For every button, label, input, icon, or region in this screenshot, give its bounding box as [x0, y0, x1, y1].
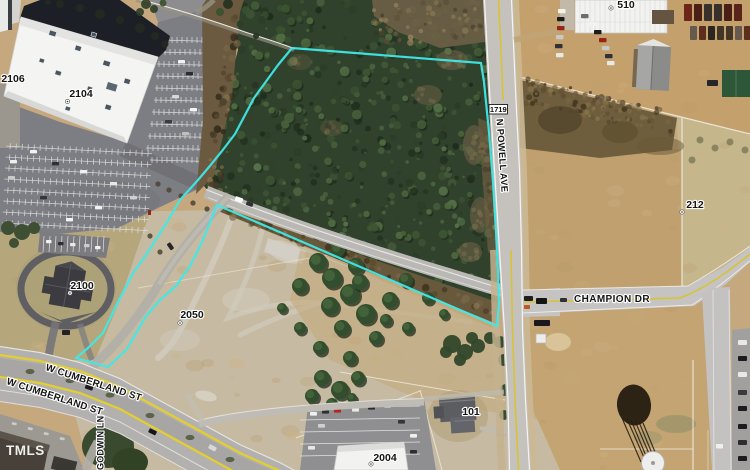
svg-text:2050: 2050 — [180, 309, 204, 321]
svg-text:101: 101 — [462, 406, 480, 418]
svg-text:2004: 2004 — [373, 452, 397, 464]
svg-text:212: 212 — [686, 199, 704, 211]
svg-text:GODWIN LN: GODWIN LN — [96, 416, 106, 470]
svg-text:2100: 2100 — [70, 280, 94, 292]
svg-text:2104: 2104 — [69, 88, 93, 100]
svg-text:510: 510 — [617, 0, 635, 11]
svg-text:2106: 2106 — [1, 73, 25, 85]
svg-text:CHAMPION DR: CHAMPION DR — [574, 294, 650, 305]
svg-text:TMLS: TMLS — [6, 443, 45, 458]
svg-text:1719: 1719 — [490, 105, 507, 114]
